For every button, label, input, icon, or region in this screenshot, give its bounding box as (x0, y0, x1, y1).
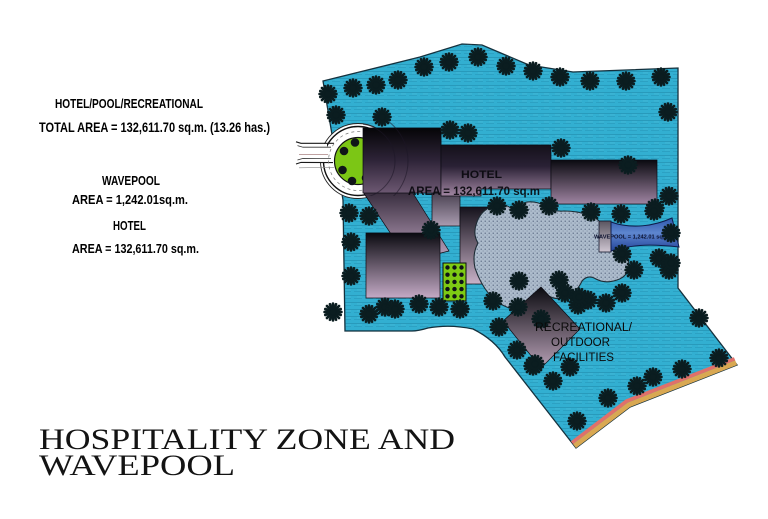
svg-text:AREA = 1,242.01sq.m.: AREA = 1,242.01sq.m. (72, 192, 188, 207)
svg-text:RECREATIONAL/: RECREATIONAL/ (535, 322, 633, 334)
svg-text:WAVEPOOL: WAVEPOOL (102, 173, 160, 188)
svg-text:TOTAL AREA = 132,611.70 sq.m.: TOTAL AREA = 132,611.70 sq.m. (13.26 has… (39, 119, 270, 135)
svg-text:AREA = 132,611.70 sq.m.: AREA = 132,611.70 sq.m. (72, 241, 199, 256)
svg-text:AREA = 132,611.70 sq.m: AREA = 132,611.70 sq.m (408, 186, 540, 198)
svg-text:HOTEL: HOTEL (113, 218, 146, 233)
svg-text:OUTDOOR: OUTDOOR (551, 337, 610, 349)
svg-text:FACILITIES: FACILITIES (553, 352, 614, 364)
svg-text:WAVEPOOL = 1,242.01 sq.m.: WAVEPOOL = 1,242.01 sq.m. (594, 235, 671, 241)
svg-text:HOTEL/POOL/RECREATIONAL: HOTEL/POOL/RECREATIONAL (55, 96, 203, 111)
svg-text:HOTEL: HOTEL (461, 169, 502, 181)
svg-text:WAVEPOOL: WAVEPOOL (39, 449, 235, 482)
